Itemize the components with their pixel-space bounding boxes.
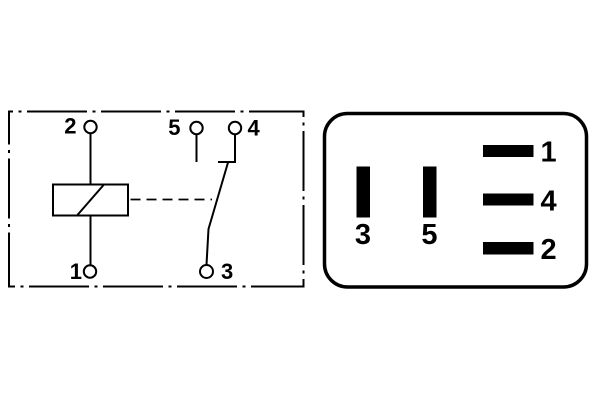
socket-pin-3-slot xyxy=(357,167,371,218)
terminal-4-label: 4 xyxy=(248,116,261,141)
relay-socket-pinout: 3 5 1 4 2 xyxy=(325,114,587,288)
socket-pin-2-slot xyxy=(483,242,534,255)
terminal-1-circle xyxy=(84,265,96,277)
terminal-3-label: 3 xyxy=(221,259,233,284)
relay-diagram-canvas: 2 1 5 4 3 3 5 1 4 2 xyxy=(0,0,600,400)
socket-pin-1-label: 1 xyxy=(541,137,557,169)
terminal-5-circle xyxy=(190,122,202,134)
terminal-2-label: 2 xyxy=(64,114,76,139)
terminal-3-circle xyxy=(200,265,213,278)
terminal-4-circle xyxy=(229,122,241,134)
terminal-5-label: 5 xyxy=(168,115,180,140)
socket-pin-4-label: 4 xyxy=(541,186,557,218)
socket-pin-3-label: 3 xyxy=(355,219,371,251)
switch-arm xyxy=(207,163,229,265)
socket-pin-5-label: 5 xyxy=(421,219,437,251)
terminal-1-label: 1 xyxy=(70,259,82,284)
terminal-2-circle xyxy=(84,121,96,133)
socket-pin-5-slot xyxy=(423,167,437,218)
socket-pin-1-slot xyxy=(483,145,534,157)
relay-diagram-page: 2 1 5 4 3 3 5 1 4 2 xyxy=(0,0,600,400)
socket-pin-2-label: 2 xyxy=(541,234,557,266)
socket-pin-4-slot xyxy=(483,194,534,206)
